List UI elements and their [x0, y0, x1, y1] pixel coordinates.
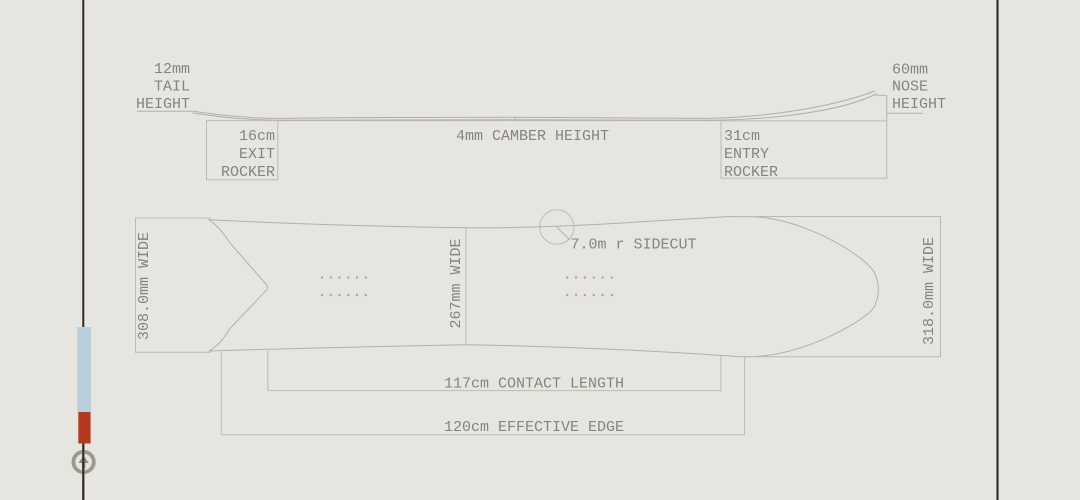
svg-text:HEIGHT: HEIGHT: [136, 96, 190, 113]
svg-text:267mm WIDE: 267mm WIDE: [448, 238, 465, 328]
svg-text:31cm: 31cm: [724, 128, 760, 145]
svg-text:308.0mm WIDE: 308.0mm WIDE: [136, 232, 153, 340]
svg-text:TAIL: TAIL: [154, 79, 190, 96]
svg-text:ROCKER: ROCKER: [221, 164, 275, 181]
svg-text:4mm CAMBER HEIGHT: 4mm CAMBER HEIGHT: [456, 128, 609, 145]
svg-text:120cm EFFECTIVE EDGE: 120cm EFFECTIVE EDGE: [444, 419, 624, 436]
svg-text:NOSE: NOSE: [892, 79, 928, 96]
svg-text:117cm CONTACT LENGTH: 117cm CONTACT LENGTH: [444, 375, 624, 392]
svg-text:12mm: 12mm: [154, 61, 190, 78]
svg-text:ROCKER: ROCKER: [724, 164, 778, 181]
svg-text:16cm: 16cm: [239, 128, 275, 145]
svg-text:60mm: 60mm: [892, 61, 928, 78]
svg-text:HEIGHT: HEIGHT: [892, 96, 946, 113]
svg-text:7.0m r SIDECUT: 7.0m r SIDECUT: [571, 237, 697, 254]
svg-text:318.0mm WIDE: 318.0mm WIDE: [921, 237, 938, 345]
svg-text:EXIT: EXIT: [239, 146, 275, 163]
svg-text:ENTRY: ENTRY: [724, 146, 769, 163]
